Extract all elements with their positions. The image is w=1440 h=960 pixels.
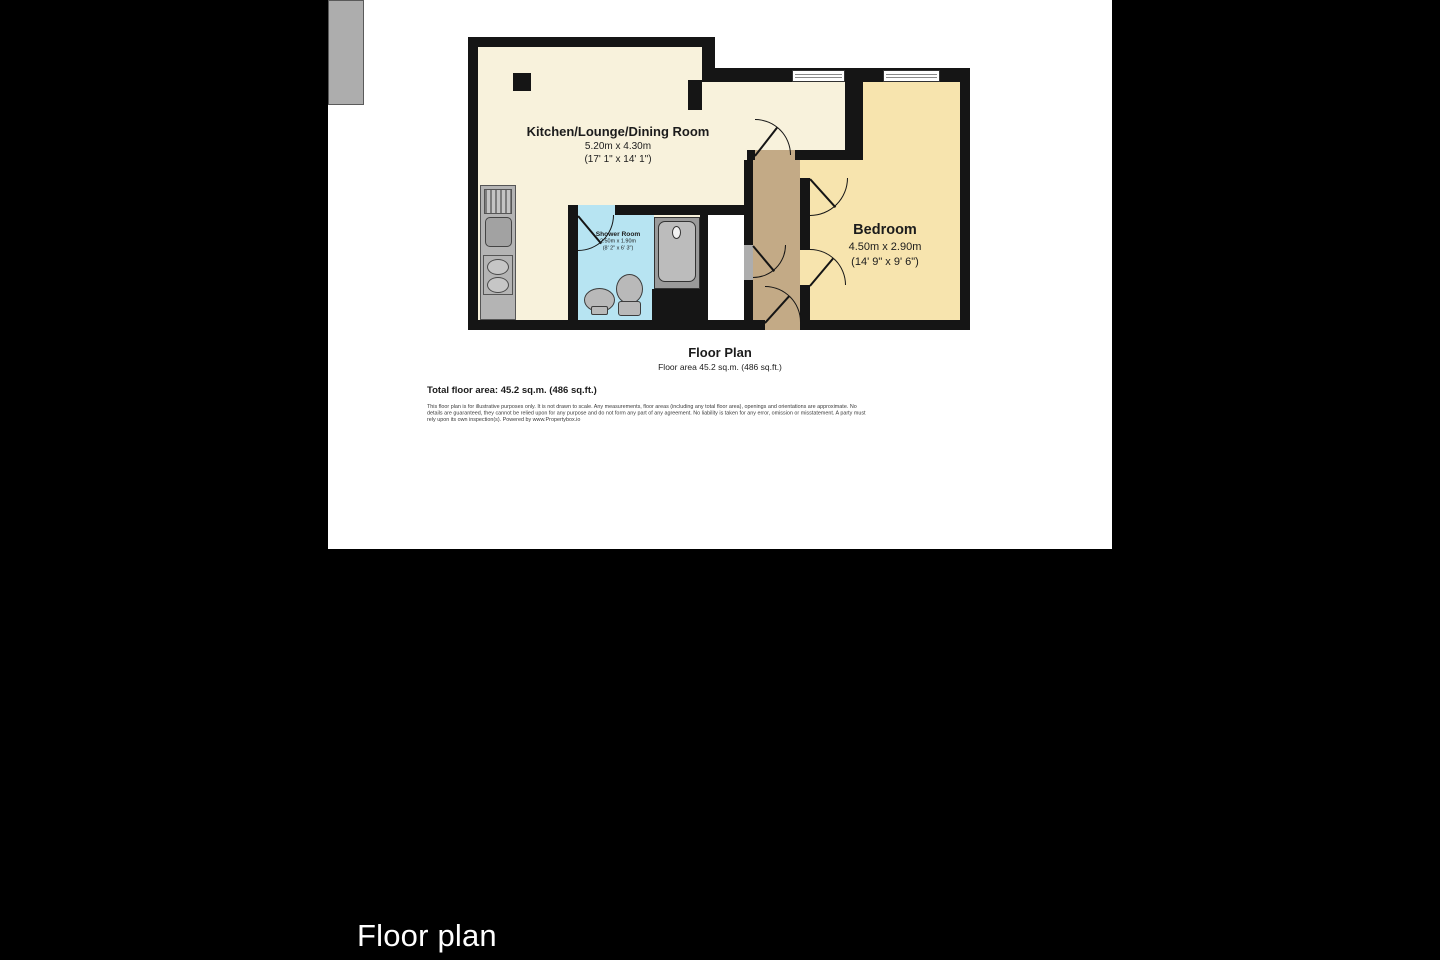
plan-subtitle: Floor area 45.2 sq.m. (486 sq.ft.) [328,362,1112,372]
bedroom-doorway [800,160,810,178]
wall-under-tray [652,289,708,320]
wall-hall-left-b [744,280,753,320]
app-background: { "caption": "Floor plan", "floorplan": … [0,0,1440,960]
wall-shower-top-a [568,205,578,215]
kitchen-sink-icon [485,217,512,247]
room-name: Kitchen/Lounge/Dining Room [488,123,748,140]
shower-drain-icon [672,226,681,239]
window-icon [792,70,845,82]
hob-ring-icon [487,277,509,293]
wall-left [468,37,478,330]
wall-hall-top-b [795,150,863,160]
structural-column [513,73,531,91]
room-dims-metric: 2.50m x 1.90m [582,238,654,245]
plan-title: Floor Plan [328,345,1112,360]
floorplan-image[interactable]: Kitchen/Lounge/Dining Room 5.20m x 4.30m… [328,0,1112,549]
store-cupboard [328,0,364,105]
wall-step [702,37,715,82]
toilet-bowl-icon [616,274,643,304]
window-pane [795,74,842,78]
room-name: Shower Room [582,230,654,238]
wall-right [960,68,970,330]
disclaimer-text: This floor plan is for illustrative purp… [427,403,871,423]
room-dims-metric: 5.20m x 4.30m [488,140,748,153]
cupboard-doorway [744,245,753,280]
room-label-bedroom: Bedroom 4.50m x 2.90m (14' 9" x 9' 6") [800,221,970,270]
room-dims-imperial: (17' 1" x 14' 1") [488,153,748,166]
total-floor-area: Total floor area: 45.2 sq.m. (486 sq.ft.… [427,385,927,396]
wall-shower-left [568,215,578,320]
room-name: Bedroom [800,221,970,240]
room-dims-imperial: (14' 9" x 9' 6") [800,255,970,270]
wall-top-kitchen [468,37,715,47]
room-dims-imperial: (8' 2" x 6' 3") [582,245,654,252]
bedroom-floor [863,82,960,320]
wall-bedroom-upper [845,82,863,160]
wall-bottom-right [800,320,970,330]
wall-bedroom-left-b [800,285,810,320]
room-label-kitchen: Kitchen/Lounge/Dining Room 5.20m x 4.30m… [488,123,748,166]
wall-hall-left-a [744,160,753,245]
window-pane [886,74,937,78]
sink-drainer-icon [484,189,512,214]
shower-doorway [578,205,615,215]
wall-stub [688,80,702,110]
wall-shower-top-b [615,205,753,215]
photo-caption: Floor plan [357,918,497,954]
hob-ring-icon [487,259,509,275]
basin-pedestal [591,306,608,315]
wall-bottom-left [468,320,765,330]
room-label-shower: Shower Room 2.50m x 1.90m (8' 2" x 6' 3"… [582,230,654,252]
room-dims-metric: 4.50m x 2.90m [800,240,970,255]
window-icon [883,70,940,82]
toilet-cistern-icon [618,301,641,316]
